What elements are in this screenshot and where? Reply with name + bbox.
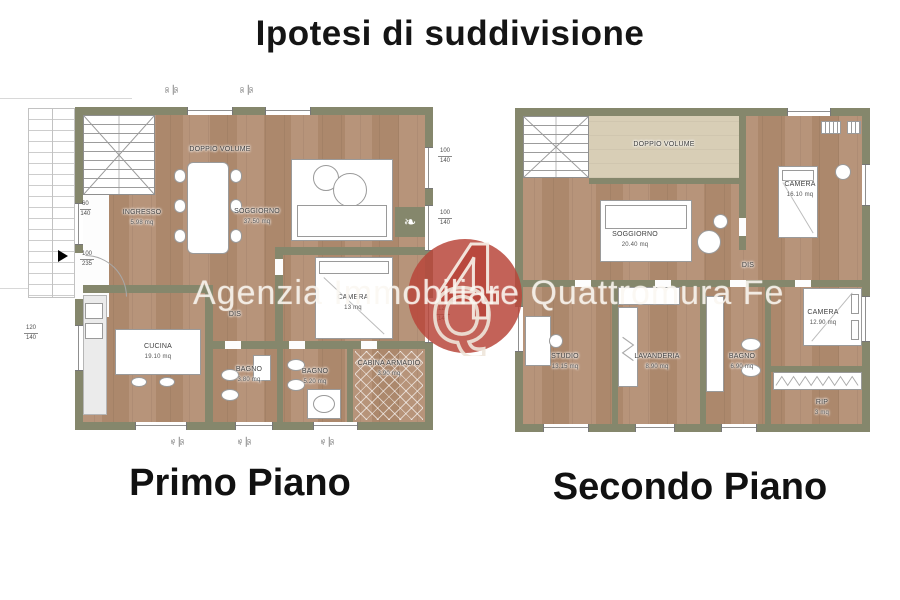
room-label-camera: CAMERA13 mq	[337, 293, 368, 313]
room-label-doppio-volume: DOPPIO VOLUME	[633, 140, 694, 151]
wall	[275, 247, 433, 255]
logo-four: 4	[438, 230, 498, 341]
door-opening	[275, 259, 283, 275]
stool	[159, 377, 175, 387]
window	[135, 422, 187, 430]
door-opening	[739, 218, 746, 236]
room-label-ingresso: INGRESSO5.98 mq	[123, 208, 162, 228]
door-opening	[289, 341, 305, 349]
staircase	[83, 115, 155, 195]
laundry-counter	[618, 287, 680, 305]
sofa-cushion	[605, 205, 687, 229]
chair	[230, 229, 242, 243]
pouf	[713, 214, 728, 229]
radiator	[821, 121, 841, 134]
bathtub-basin	[313, 395, 335, 413]
stool	[131, 377, 147, 387]
dimension-window: 120140	[436, 305, 450, 324]
pouf	[697, 230, 721, 254]
door-opening	[655, 280, 671, 287]
bidet	[221, 389, 239, 401]
dimension-edge: 4550	[238, 437, 254, 447]
laundry-column	[618, 307, 638, 387]
window	[862, 296, 870, 342]
door-opening	[361, 341, 377, 349]
window	[187, 107, 233, 115]
bath-counter	[706, 296, 724, 392]
room-label-rip: RIP3 mq	[815, 398, 829, 418]
dimension-door: 100235	[80, 250, 94, 269]
staircase	[523, 116, 589, 178]
bed-pillow	[851, 320, 859, 340]
dimension-edge: 9050	[240, 85, 256, 95]
window	[515, 306, 523, 352]
window	[265, 107, 311, 115]
side-table	[835, 164, 851, 180]
dimension-edge: 9050	[165, 85, 181, 95]
window	[635, 424, 675, 432]
wall	[205, 285, 213, 430]
page-title: Ipotesi di suddivisione	[0, 14, 900, 54]
dining-table	[187, 162, 229, 254]
desk	[525, 316, 551, 366]
room-label-studio: STUDIO13.15 mq	[551, 352, 579, 372]
caption-primo-piano: Primo Piano	[90, 462, 390, 505]
stair-divider	[52, 109, 53, 297]
window	[75, 325, 83, 371]
leader-line	[0, 98, 132, 99]
room-label-dis: DIS	[742, 261, 754, 272]
bed-pillow	[319, 261, 389, 274]
floorplan-secondo-piano: DOPPIO VOLUME CAMERA16.10 mq SOGGIORNO20…	[515, 108, 870, 432]
entry-arrow-icon	[58, 250, 68, 262]
window	[787, 108, 831, 116]
chair	[230, 169, 242, 183]
bed-pillow	[851, 294, 859, 314]
external-staircase	[28, 108, 75, 298]
window	[543, 424, 589, 432]
room-label-cucina: CUCINA19.10 mq	[144, 342, 172, 362]
window	[425, 147, 433, 189]
room-label-bagno-1: BAGNO3.80 mq	[236, 365, 262, 385]
room-label-doppio-volume: DOPPIO VOLUME	[189, 145, 250, 156]
chair	[174, 229, 186, 243]
wardrobe-rail	[773, 372, 862, 390]
door-opening	[795, 280, 811, 287]
door-opening	[730, 280, 746, 287]
desk-chair	[549, 334, 563, 348]
window	[425, 297, 433, 343]
dimension-edge: 4550	[321, 437, 337, 447]
caption-secondo-piano: Secondo Piano	[540, 466, 840, 509]
dimension-edge: 4550	[171, 437, 187, 447]
room-label-camera-2: CAMERA12.90 mq	[807, 308, 838, 328]
dimension-window: 60140	[80, 200, 91, 219]
room-label-lavanderia: LAVANDERIA8.90 mq	[634, 352, 679, 372]
room-label-bagno-2: BAGNO5.20 mq	[302, 367, 328, 387]
window	[235, 422, 273, 430]
room-label-camera-1: CAMERA16.10 mq	[784, 180, 815, 200]
room-label-dis: DIS	[229, 310, 241, 321]
room-label-cabina-armadio: CABINA ARMADIO3.90 mq	[358, 359, 421, 379]
toilet	[741, 338, 761, 351]
wall	[862, 108, 870, 432]
door-opening	[225, 341, 241, 349]
chair	[174, 169, 186, 183]
wall	[589, 178, 739, 184]
radiator	[847, 121, 861, 134]
wall	[277, 349, 283, 422]
room-label-soggiorno: SOGGIORNO20.40 mq	[612, 230, 658, 250]
room-label-bagno: BAGNO6.90 mq	[729, 352, 755, 372]
window	[313, 422, 358, 430]
window	[425, 205, 433, 251]
sofa	[297, 205, 387, 237]
door-opening	[575, 280, 591, 287]
window	[862, 164, 870, 206]
kitchen-sink	[85, 303, 103, 319]
dimension-window: 100140	[438, 147, 452, 166]
dimension-window: 120140	[24, 324, 38, 343]
wall	[515, 108, 523, 432]
wall	[75, 107, 433, 115]
chair	[174, 199, 186, 213]
wall	[213, 341, 433, 349]
dimension-window: 100140	[438, 209, 452, 228]
wall	[347, 349, 353, 422]
plant-icon: ❧	[395, 207, 425, 237]
kitchen-hob	[85, 323, 103, 339]
window	[721, 424, 757, 432]
side-table	[333, 173, 367, 207]
room-label-soggiorno: SOGGIORNO37.50 mq	[234, 207, 280, 227]
floorplan-primo-piano: ❧ DOPPIO VOLUME INGRESSO5.98 mq SOGGIORN…	[75, 107, 433, 430]
wall	[765, 287, 771, 424]
wall	[523, 280, 862, 287]
